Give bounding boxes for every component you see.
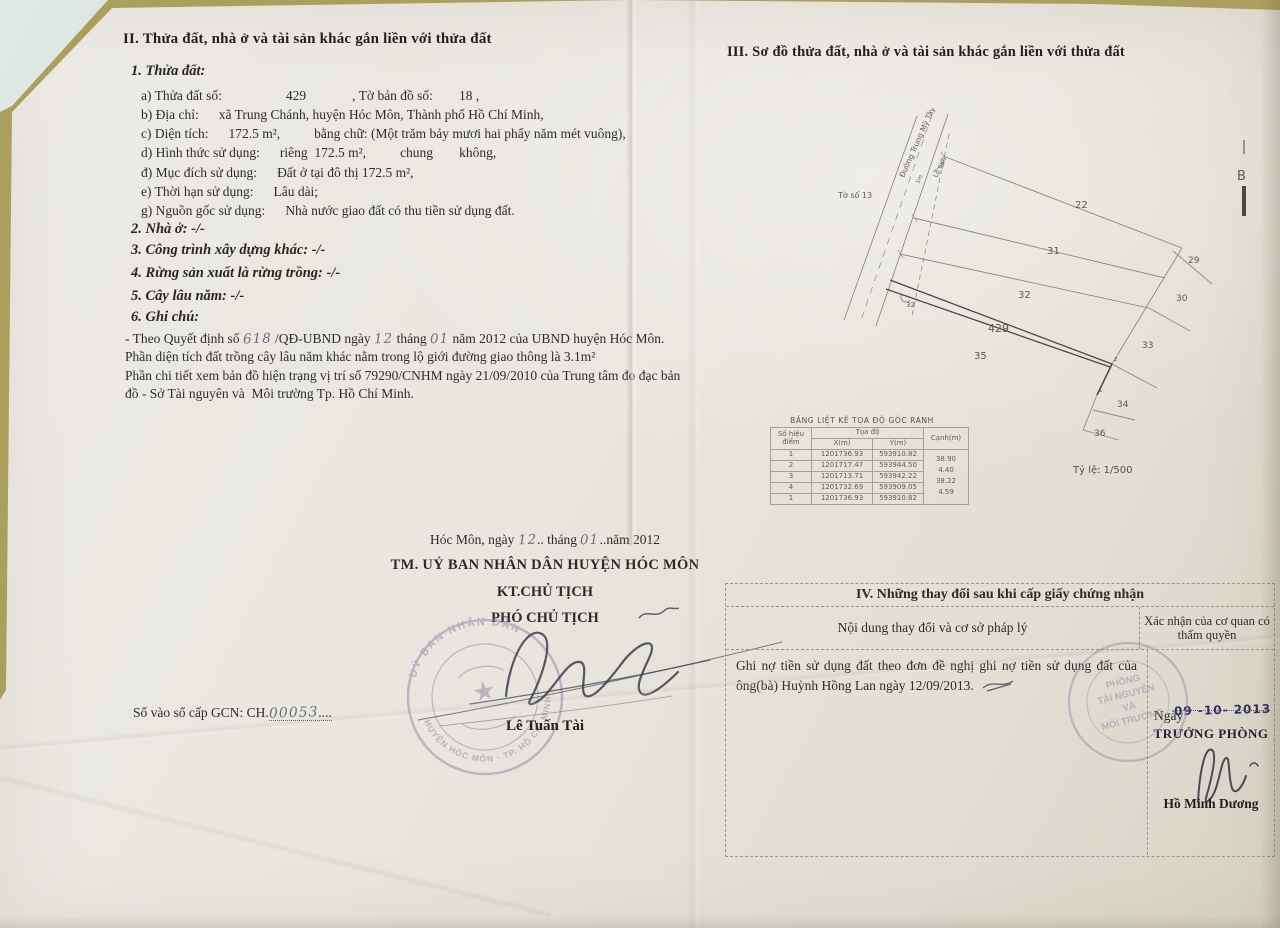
- decision-number-handwritten: 618: [243, 331, 272, 348]
- section2-item5: 5. Cây lâu năm: -/-: [131, 288, 244, 305]
- coordinate-table-block: BẢNG LIỆT KÊ TỌA ĐỘ GÓC RANH Số hiệuđiểm…: [770, 416, 969, 505]
- col-y-header: Y(m): [873, 439, 924, 450]
- parcel-30-label: 30: [1176, 294, 1188, 304]
- parcel-number-label: a) Thửa đất số:: [141, 88, 222, 103]
- field-use-purpose: đ) Mục đích sử dụng:Đất ở tại đô thị 172…: [141, 165, 414, 181]
- section2-item1-title: 1. Thửa đất:: [131, 63, 205, 80]
- address-label: b) Địa chỉ:: [141, 107, 199, 122]
- section2-item3: 3. Công trình xây dựng khác: -/-: [131, 242, 325, 259]
- parcel-29-label: 29: [1188, 256, 1200, 266]
- road-left-edge: [844, 116, 917, 320]
- field-use-term: e) Thời hạn sử dụng:Lâu dài;: [141, 184, 318, 200]
- col-edge-header: Cạnh(m): [924, 428, 969, 450]
- boundary-line-1: [943, 156, 1182, 248]
- note-decision-text2: /QĐ-UBND ngày: [272, 331, 374, 346]
- entry-paraph-squiggle: [981, 676, 1017, 692]
- map-sheet-value: 18 ,: [459, 88, 479, 103]
- parcel-35-label: 35: [974, 351, 987, 362]
- decision-month-handwritten: 01: [430, 331, 450, 348]
- registry-dots: ....: [318, 705, 332, 720]
- field-use-origin: g) Nguồn gốc sử dụng:Nhà nước giao đất c…: [141, 203, 515, 219]
- use-purpose-value: Đất ở tại đô thị 172.5 m²,: [277, 165, 413, 180]
- area-in-words: bằng chữ: (Một trăm bảy mươi hai phẩy nă…: [314, 126, 626, 141]
- orientation-mark-letter: B: [1237, 169, 1246, 184]
- parcel-429-label: 429: [988, 322, 1009, 335]
- day-handwritten: 12: [517, 532, 537, 549]
- month-handwritten: 01: [580, 532, 600, 549]
- col-coords-header: Tọa độ: [812, 428, 924, 439]
- coordinate-table: Số hiệuđiểm Tọa độ Cạnh(m) X(m) Y(m) 112…: [770, 427, 969, 505]
- department-stamp: PHÒNG TÀI NGUYÊN VÀ MÔI TRƯỜNG: [1062, 636, 1194, 768]
- road-name-label: Đường Trung Mỹ Tây 4: [898, 108, 940, 179]
- parcel-32-label: 32: [1018, 290, 1031, 301]
- place-date-text2: .. tháng: [537, 532, 581, 547]
- coord-row: 11201736.93593910.82 38.90 4.40 38.22 4.…: [771, 450, 969, 461]
- col-x-header: X(m): [812, 439, 873, 450]
- registry-number-line: Số vào sổ cấp GCN: CH.00053....: [133, 705, 332, 721]
- spur-line-33: [1112, 364, 1157, 388]
- use-form-shared-value: không,: [459, 145, 496, 160]
- place-date-text1: Hóc Môn, ngày: [430, 532, 518, 547]
- address-value: xã Trung Chánh, huyện Hóc Môn, Thành phố…: [219, 107, 544, 122]
- use-purpose-label: đ) Mục đích sử dụng:: [141, 165, 257, 180]
- parcel-31-label: 31: [1047, 246, 1060, 257]
- section4-title: IV. Những thay đổi sau khi cấp giấy chứn…: [726, 584, 1274, 607]
- section2-item6: 6. Ghi chú:: [131, 309, 199, 326]
- decision-day-handwritten: 12: [374, 331, 394, 348]
- use-form-label: d) Hình thức sử dụng:: [141, 145, 260, 160]
- field-parcel-number: a) Thửa đất số:429, Tờ bản đồ số:18 ,: [141, 88, 479, 104]
- section2-item2: 2. Nhà ở: -/-: [131, 221, 205, 238]
- parcel-33-label: 33: [1142, 341, 1153, 351]
- field-use-form: d) Hình thức sử dụng:riêng 172.5 m²,chun…: [141, 145, 496, 161]
- parcel-number-value: 429: [286, 88, 306, 103]
- authority-kt-chu-tich: KT.CHỦ TỊCH: [330, 584, 760, 601]
- survey-point-1-label: 1: [1099, 388, 1103, 394]
- registry-label: Số vào sổ cấp GCN: CH.: [133, 705, 269, 720]
- field-address: b) Địa chỉ:xã Trung Chánh, huyện Hóc Môn…: [141, 107, 544, 123]
- note-decision-text4: năm 2012 của UBND huyện Hóc Môn.: [449, 331, 664, 346]
- use-origin-label: g) Nguồn gốc sử dụng:: [141, 203, 265, 218]
- use-form-private: riêng 172.5 m²,: [280, 145, 366, 160]
- note-decision-text1: - Theo Quyết định số: [125, 331, 243, 346]
- parcel-22-label: 22: [1075, 200, 1088, 211]
- section2-item4: 4. Rừng sản xuất là rừng trồng: -/-: [131, 265, 340, 282]
- cadastral-sketch: Tờ số 13 Đường Trung Mỹ Tây 4 1m Lộ giới…: [820, 108, 1260, 453]
- sheet-ref-label: Tờ số 13: [837, 190, 872, 200]
- dept-stamp-line3: VÀ: [1122, 700, 1138, 714]
- parcel-36-label: 36: [1094, 429, 1106, 439]
- note-decision: - Theo Quyết định số 618 /QĐ-UBND ngày 1…: [125, 331, 685, 347]
- edge-length: 4.40: [924, 467, 968, 474]
- survey-point-2-label: 2: [1114, 357, 1118, 363]
- survey-point-32-label: 32: [906, 301, 915, 309]
- chairman-name: Lê Tuấn Tài: [430, 718, 660, 735]
- note-decision-text3: tháng: [393, 331, 430, 346]
- right-boundary-lower: [1083, 395, 1097, 430]
- map-sheet-label: , Tờ bản đồ số:: [352, 88, 433, 103]
- note-map-reference: Phần chi tiết xem bản đồ hiện trạng vị t…: [125, 367, 683, 402]
- field-area: c) Diện tích:172.5 m²,bằng chữ: (Một tră…: [141, 126, 626, 142]
- area-value: 172.5 m²,: [228, 126, 280, 141]
- edge-length: 38.22: [924, 478, 968, 485]
- authority-name: TM. UỶ BAN NHÂN DÂN HUYỆN HÓC MÔN: [330, 557, 760, 574]
- edge-lengths-cell: 38.90 4.40 38.22 4.59: [924, 450, 969, 505]
- section3-heading: III. Sơ đồ thửa đất, nhà ở và tài sản kh…: [727, 44, 1272, 61]
- head-officer-name: Hồ Minh Dương: [1146, 796, 1276, 812]
- place-date-line: Hóc Môn, ngày 12.. tháng 01..năm 2012: [370, 532, 720, 548]
- map-scale-label: Tỷ lệ: 1/500: [1073, 465, 1133, 476]
- spur-line-34: [1093, 410, 1135, 420]
- section2-heading: II. Thửa đất, nhà ở và tài sản khác gắn …: [123, 31, 683, 48]
- use-term-label: e) Thời hạn sử dụng:: [141, 184, 253, 199]
- coordinate-table-title: BẢNG LIỆT KÊ TỌA ĐỘ GÓC RANH: [770, 416, 954, 425]
- edge-length: 4.59: [924, 489, 968, 496]
- use-form-shared-label: chung: [400, 145, 433, 160]
- setback-width-label: 1m: [915, 174, 924, 185]
- place-date-text3: ..năm 2012: [600, 532, 660, 547]
- use-origin-value: Nhà nước giao đất có thu tiền sử dụng đấ…: [285, 203, 514, 218]
- note-road-corridor: Phần diện tích đất trồng cây lâu năm khá…: [125, 349, 685, 365]
- spur-line-30: [1149, 308, 1190, 331]
- registry-number-handwritten: 00053: [268, 704, 318, 722]
- parcel-34-label: 34: [1117, 400, 1129, 410]
- edge-length: 38.90: [924, 456, 968, 463]
- col-point-header: Số hiệuđiểm: [771, 428, 812, 450]
- setback-text-label: Lộ giới: [932, 156, 948, 179]
- use-term-value: Lâu dài;: [273, 184, 318, 199]
- area-label: c) Diện tích:: [141, 126, 208, 141]
